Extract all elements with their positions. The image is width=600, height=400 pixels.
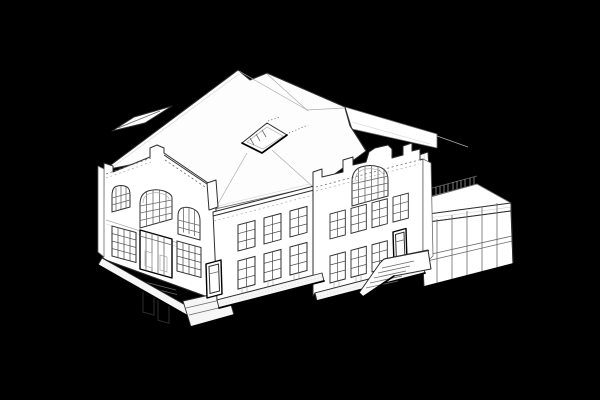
wing-window [264,249,281,282]
building-axonometric-drawing [0,0,600,400]
wing-side-door [206,260,222,298]
gable-window [372,199,387,228]
gable-window [351,246,366,277]
wing-window [264,213,281,244]
wing-window [290,206,307,237]
wing-window [238,220,255,251]
gable-window [330,210,345,239]
gable-window [330,252,345,283]
west-return-wall [98,166,104,257]
wing-corner-pier [207,180,218,210]
lower-window-left [112,226,136,262]
wing-window [290,242,307,275]
drawing-canvas [0,0,600,400]
lower-window-right [177,241,201,277]
gable-window [393,193,408,222]
gable-window [351,204,366,233]
wing-window [238,256,255,289]
gable-east-return [423,159,433,265]
